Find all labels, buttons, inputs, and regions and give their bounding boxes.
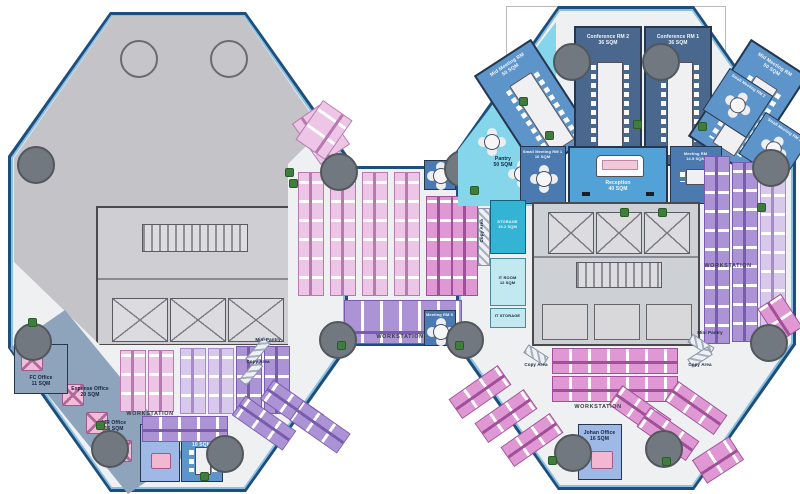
left-core — [96, 206, 292, 346]
column — [319, 321, 357, 359]
plant-icon — [548, 456, 557, 465]
workstation-column — [394, 172, 420, 296]
room-area: 19.2 SQM — [491, 224, 524, 229]
plant-icon — [698, 122, 707, 131]
stairs — [576, 262, 662, 288]
workstation-label: WORKSTATION — [120, 411, 180, 417]
room-label: IT STORAGE — [491, 313, 524, 318]
service-room — [646, 304, 692, 340]
plant-icon — [519, 97, 528, 106]
plant-icon — [289, 179, 298, 188]
column — [206, 435, 244, 473]
room-name: Meeting RM 5 — [425, 312, 454, 317]
column — [752, 149, 790, 187]
column — [320, 153, 358, 191]
copy-area-label: Copy Area — [479, 211, 485, 251]
reception-desk — [596, 155, 644, 177]
elevator — [548, 212, 594, 254]
room-area: 10 SQM — [521, 154, 564, 159]
stairs — [142, 224, 248, 252]
elevator — [596, 212, 642, 254]
service-room — [542, 304, 588, 340]
round-table — [484, 134, 500, 150]
floor-plan: FC Office 11 SQM Expense Office 20 SQM M… — [0, 0, 800, 494]
workstation-label: WORKSTATION — [368, 334, 432, 340]
room-label: STORAGE 19.2 SQM — [491, 219, 524, 229]
room-area: 20 SQM — [58, 392, 122, 398]
round-table — [727, 94, 749, 116]
room-area: 36 SQM — [576, 40, 640, 46]
mini-pantry-label: Mini Pantry — [248, 337, 288, 343]
column — [750, 324, 788, 362]
room-label: Reception 40 SQM — [570, 180, 666, 193]
service-room — [594, 304, 640, 340]
elevator — [228, 298, 284, 342]
room-reception: Reception 40 SQM — [568, 146, 668, 204]
plant-icon — [455, 341, 464, 350]
workstation-column — [704, 156, 730, 344]
column — [554, 434, 592, 472]
workstation-column — [426, 196, 452, 296]
room-label: Meeting RM 5 — [425, 312, 454, 317]
reception-counter — [602, 160, 638, 170]
copy-area-label: Copy Area — [238, 359, 278, 365]
plant-icon — [96, 421, 105, 430]
workstation-label: WORKSTATION — [700, 263, 756, 269]
column — [91, 430, 129, 468]
column — [17, 146, 55, 184]
room-label: Expense Office 20 SQM — [58, 386, 122, 399]
room-label: IT ROOM 12 SQM — [491, 275, 524, 285]
column — [642, 43, 680, 81]
plant-icon — [470, 186, 479, 195]
workstation-row — [552, 348, 678, 374]
conference-table — [597, 62, 623, 156]
core-wall — [534, 256, 698, 258]
workstation-column — [148, 350, 174, 412]
copy-area-label: Copy Area — [518, 362, 554, 368]
room-label: Conference RM 2 36 SQM — [576, 34, 640, 47]
office-desk — [591, 451, 613, 469]
workstation-label: WORKSTATION — [566, 404, 630, 410]
room-it: IT ROOM 12 SQM — [490, 258, 526, 306]
plant-icon — [337, 341, 346, 350]
workstation-column — [732, 162, 758, 342]
plant-icon — [28, 318, 37, 327]
mini-pantry-label: Mini Pantry — [690, 330, 730, 336]
column — [553, 43, 591, 81]
workstation-column — [180, 348, 206, 414]
workstation-column — [362, 172, 388, 296]
plant-icon — [757, 203, 766, 212]
column — [446, 321, 484, 359]
room-area: 12 SQM — [491, 280, 524, 285]
room-storage: STORAGE 19.2 SQM — [490, 200, 526, 254]
entry-mark — [582, 192, 590, 196]
workstation-column — [120, 350, 146, 412]
room-name: IT STORAGE — [491, 313, 524, 318]
column — [210, 40, 248, 78]
column — [14, 323, 52, 361]
plant-icon — [633, 120, 642, 129]
room-small-meeting-1: Small Meeting RM 1 10 SQM — [520, 146, 566, 204]
right-core — [532, 202, 700, 346]
room-it-storage: IT STORAGE — [490, 308, 526, 328]
workstation-column — [208, 348, 234, 414]
workstation-column — [298, 172, 324, 296]
elevator — [112, 298, 168, 342]
plant-icon — [285, 168, 294, 177]
plant-icon — [620, 208, 629, 217]
elevator — [644, 212, 690, 254]
workstation-column — [452, 196, 478, 296]
plant-icon — [658, 208, 667, 217]
round-table — [536, 171, 552, 187]
office-desk — [151, 453, 171, 469]
entry-mark — [646, 192, 654, 196]
copy-area-label: Copy Area — [682, 362, 718, 368]
plant-icon — [662, 457, 671, 466]
plant-icon — [545, 131, 554, 140]
elevator — [170, 298, 226, 342]
plant-icon — [200, 472, 209, 481]
column — [120, 40, 158, 78]
workstation-column — [330, 172, 356, 296]
core-wall — [98, 278, 294, 280]
room-label: Small Meeting RM 1 10 SQM — [521, 149, 564, 159]
